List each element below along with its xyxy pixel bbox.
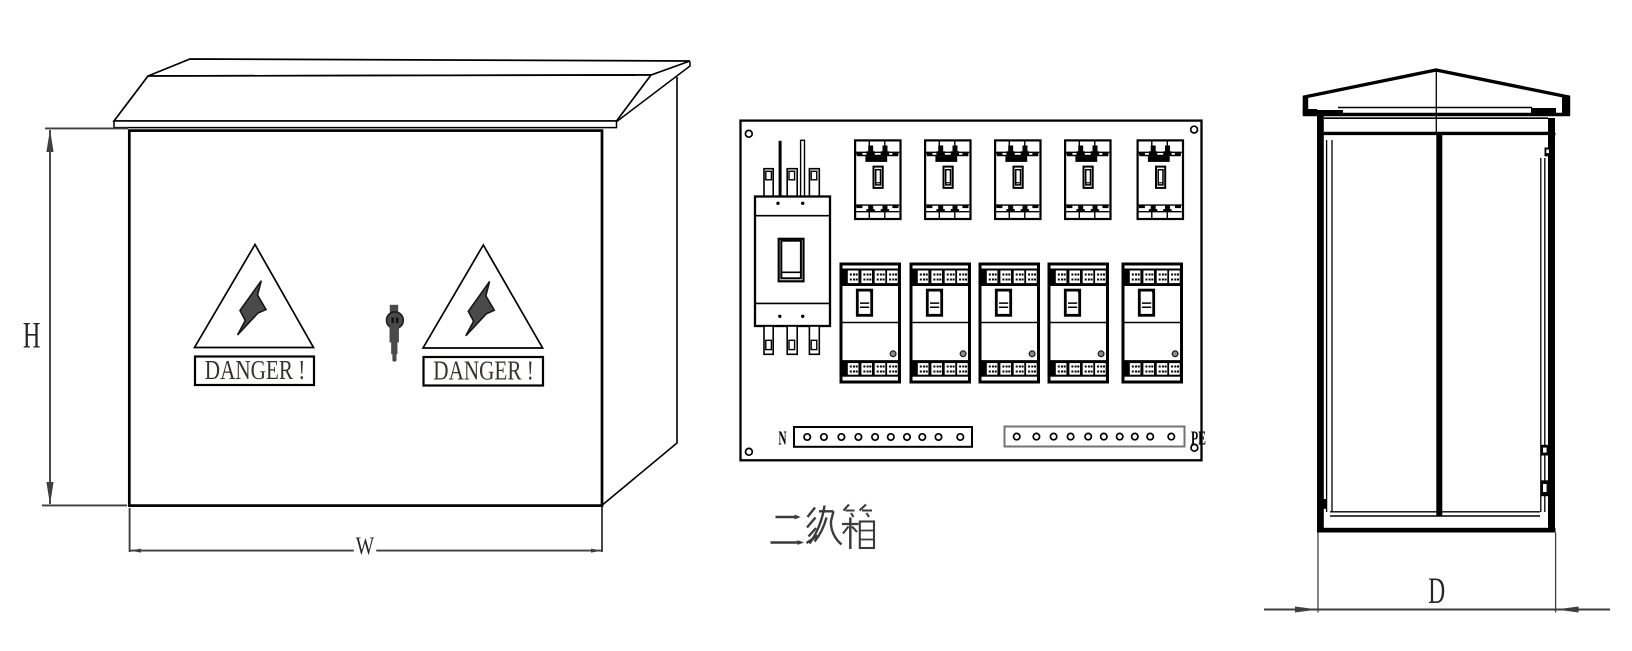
svg-text:D: D [1428, 571, 1445, 612]
svg-text:W: W [356, 533, 375, 560]
svg-text:H: H [23, 315, 41, 356]
svg-text:DANGER !: DANGER ! [433, 355, 534, 385]
svg-text:N: N [778, 427, 787, 449]
svg-text:PE: PE [1191, 429, 1206, 450]
svg-text:DANGER !: DANGER ! [205, 355, 305, 385]
